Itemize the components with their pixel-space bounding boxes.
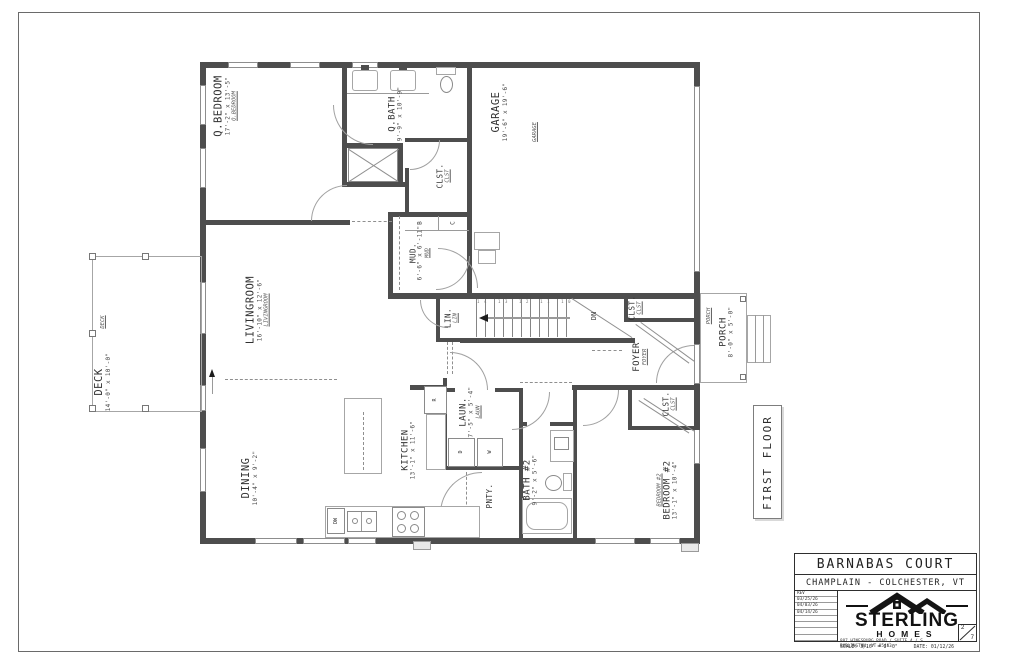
porch-post bbox=[740, 296, 746, 302]
wall bbox=[345, 182, 405, 187]
porch-post bbox=[740, 374, 746, 380]
room-label-porch: PORCH 8'-0" x 5'-0" bbox=[719, 307, 736, 358]
cubby-b-label: B bbox=[417, 221, 424, 225]
range bbox=[392, 507, 425, 537]
deck-post bbox=[89, 253, 96, 260]
garage-step bbox=[478, 250, 496, 264]
sink bbox=[554, 437, 569, 450]
burner bbox=[397, 511, 406, 520]
arrow-head bbox=[209, 369, 215, 377]
room-label-livingroom: LIVINGROOM 16'-10" x 12'-6" LIVINGROOM bbox=[246, 276, 271, 344]
opening-dashed bbox=[520, 382, 572, 383]
opening-dashed bbox=[225, 379, 337, 380]
scale-note: SCALE: 3/16" = 1'-0" bbox=[840, 645, 898, 650]
window-tag bbox=[681, 543, 699, 552]
room-tag-porch: PORCH bbox=[706, 308, 712, 325]
window bbox=[290, 62, 320, 68]
sheet-number-box: 2 7 bbox=[958, 624, 976, 641]
room-label-pnty: PNTY. bbox=[486, 483, 494, 508]
drawing-sheet: B C 14 13 12 11 10 9 8 7 6 5 4 DN R DW D… bbox=[0, 0, 1024, 663]
porch-steps bbox=[747, 315, 771, 363]
room-label-lin: LIN. LIN bbox=[445, 308, 460, 328]
garage-step bbox=[474, 232, 500, 250]
room-label-qbath: Q.BATH 9'-9" x 10'-9" bbox=[388, 87, 405, 142]
room-label-bedroom2: BEDROOM #2 BEDROOM #2 13'-1" x 10'-4" bbox=[657, 460, 680, 519]
porch-step-line bbox=[763, 315, 764, 363]
deck-post bbox=[89, 330, 96, 337]
arrow-line bbox=[212, 376, 213, 394]
window bbox=[228, 62, 258, 68]
landing-dashed bbox=[592, 350, 622, 351]
deck-post bbox=[142, 405, 149, 412]
window bbox=[255, 538, 297, 544]
room-label-clst1: CLST. CLST bbox=[437, 163, 452, 188]
revision-column: REV 03/25/26 04/03/26 04/14/26 bbox=[795, 591, 838, 641]
room-label-mud: MUD. 6'-6" x 6'-11" MUD bbox=[409, 226, 430, 281]
opening-dashed bbox=[447, 342, 448, 374]
project-location: CHAMPLAIN - COLCHESTER, VT bbox=[795, 575, 976, 590]
sheet-title: FIRST FLOOR bbox=[761, 415, 774, 510]
room-label-foyer: FOYER FOYER bbox=[632, 342, 648, 372]
faucet-icon bbox=[361, 65, 369, 70]
wall bbox=[342, 143, 347, 187]
wall bbox=[405, 168, 409, 216]
logo-rule-right bbox=[946, 605, 968, 607]
wall bbox=[460, 338, 635, 343]
room-label-clst2: CLST. CLST bbox=[629, 295, 644, 320]
stair-dn-label: DN bbox=[590, 312, 598, 320]
mud-bench-dashed bbox=[399, 216, 400, 290]
burner bbox=[410, 524, 419, 533]
deck-post bbox=[142, 253, 149, 260]
dryer-label: D bbox=[458, 450, 464, 453]
window-tag bbox=[413, 541, 431, 550]
room-tag-garage: GARAGE bbox=[532, 122, 538, 142]
cubby-c-label: C bbox=[450, 221, 457, 225]
toilet-tank bbox=[436, 67, 456, 75]
sink bbox=[352, 70, 378, 91]
company-name: STERLING bbox=[838, 611, 976, 630]
room-label-kitchen: KITCHEN 13'-1" x 11'-6" bbox=[401, 421, 418, 480]
window bbox=[200, 448, 206, 492]
project-title: BARNABAS COURT bbox=[795, 554, 976, 575]
room-label-dining: DINING 10'-4" x 9'-2" bbox=[241, 451, 259, 506]
cubby-line bbox=[438, 216, 439, 230]
stair-arrow-line bbox=[488, 317, 570, 319]
stair-arrow-head bbox=[479, 314, 488, 322]
sink-divider bbox=[361, 512, 362, 531]
toilet-bowl bbox=[440, 76, 453, 93]
logo-area: STERLING HOMES 807 HINESBURG ROAD / SUIT… bbox=[838, 591, 976, 641]
window bbox=[200, 148, 206, 188]
sink-drain bbox=[352, 518, 358, 524]
window bbox=[303, 538, 345, 544]
wall bbox=[628, 385, 632, 426]
title-block: BARNABAS COURT CHAMPLAIN - COLCHESTER, V… bbox=[794, 553, 977, 642]
room-label-deck: DECK 14'-0" x 10'-0" bbox=[94, 353, 112, 412]
burner bbox=[397, 524, 406, 533]
burner bbox=[410, 511, 419, 520]
stair-tread-numbers: 14 13 12 11 10 9 8 7 6 5 4 bbox=[477, 299, 572, 304]
rev-row-empty bbox=[795, 635, 837, 641]
room-label-qbedroom: Q.BEDROOM 17'-2" x 13'-5" Q.BEDROOM bbox=[214, 75, 239, 136]
room-label-garage: GARAGE 19'-6" x 19'-6" bbox=[491, 83, 509, 142]
sink-drain bbox=[366, 518, 372, 524]
toilet-bowl bbox=[545, 475, 562, 491]
dishwasher-label: DW bbox=[333, 518, 339, 524]
garage-door bbox=[694, 86, 700, 272]
sheet-title-box: FIRST FLOOR bbox=[753, 405, 782, 519]
window bbox=[694, 428, 700, 464]
faucet-icon bbox=[399, 65, 407, 70]
window bbox=[200, 85, 206, 125]
sheet-number: 2 bbox=[961, 625, 964, 631]
company-subname: HOMES bbox=[838, 629, 976, 639]
window bbox=[348, 538, 376, 544]
window bbox=[595, 538, 635, 544]
washer-label: W bbox=[487, 450, 493, 453]
fridge-label: R bbox=[432, 398, 438, 401]
room-label-bath2: BATH #2 9'-2" x 5'-6" bbox=[523, 455, 540, 506]
logo-rule-left bbox=[846, 605, 868, 607]
bathtub-inner bbox=[526, 502, 568, 530]
island-dashed bbox=[363, 412, 364, 470]
window bbox=[650, 538, 680, 544]
porch-step-line bbox=[755, 315, 756, 363]
room-label-clst3: CLST. CLST bbox=[663, 391, 678, 416]
wall bbox=[388, 212, 469, 217]
wall bbox=[388, 212, 393, 298]
toilet-tank bbox=[563, 473, 572, 491]
date-note: DATE: 01/12/26 bbox=[914, 645, 954, 650]
kitchen-counter bbox=[426, 414, 446, 470]
opening-dashed bbox=[352, 221, 392, 222]
room-tag-deck: DECK bbox=[100, 315, 106, 328]
room-label-laun: LAUN. 7'-5" x 5'-4" LAUN bbox=[459, 387, 482, 438]
sheet-total: 7 bbox=[971, 635, 974, 641]
